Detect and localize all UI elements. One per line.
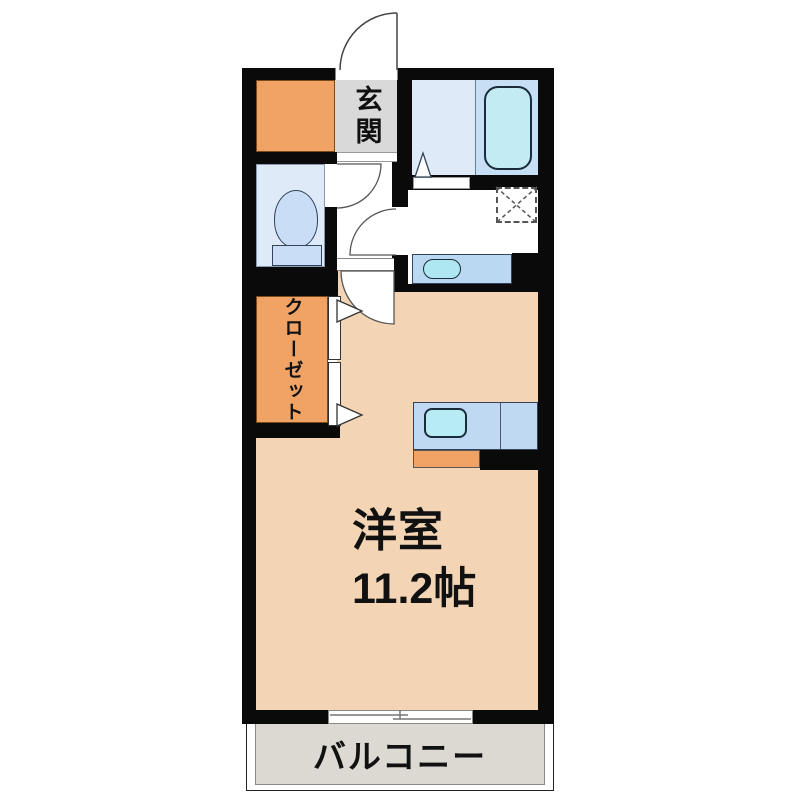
main-room-door-threshold: [337, 258, 394, 271]
main-room-size-label: 11.2帖: [352, 560, 476, 618]
washbasin-sink-icon: [423, 259, 461, 279]
main-room-label: 洋室: [352, 502, 476, 560]
bathroom-floor: [412, 80, 475, 175]
bathroom-door-strip: [413, 177, 470, 189]
kitchen-sink-icon: [424, 408, 467, 438]
floorplan: 玄関 クローゼット 洋室 11.2帖 バルコニー: [0, 0, 800, 800]
stove-icon: [413, 450, 480, 468]
toilet-door-opening: [325, 164, 337, 207]
closet-door-panel-bottom: [328, 362, 341, 426]
hallway-floor: [337, 152, 392, 258]
wall-bottom-left: [242, 710, 328, 724]
closet-label: クローゼット: [257, 297, 327, 423]
wall-toilet-closet: [242, 267, 338, 296]
wall-closet-bottom: [242, 423, 340, 438]
toilet-tank-icon: [272, 245, 322, 266]
bathtub-icon: [484, 86, 532, 170]
entrance-label: 玄関: [337, 82, 397, 152]
wall-top-right: [398, 68, 554, 80]
wall-washroom-bottom: [404, 284, 538, 292]
toilet-bowl-icon: [274, 190, 318, 248]
wall-bottom-right: [473, 710, 554, 724]
entrance-door-arc: [340, 13, 397, 70]
washing-machine-space-icon: [496, 187, 537, 223]
wall-kitchen-stub: [480, 450, 538, 470]
entrance-step: [337, 152, 397, 162]
storage-box-floor: [256, 80, 335, 152]
kitchen-counter-divider: [500, 403, 501, 449]
main-room-label-block: 洋室 11.2帖: [352, 502, 476, 618]
closet-door-panel-top: [328, 296, 341, 360]
wall-right: [538, 68, 554, 724]
balcony-label: バルコニー: [255, 723, 545, 785]
washroom-door-opening: [392, 207, 408, 255]
sliding-window: [328, 710, 473, 724]
wall-left: [242, 68, 256, 724]
entrance-door-opening: [335, 68, 398, 80]
